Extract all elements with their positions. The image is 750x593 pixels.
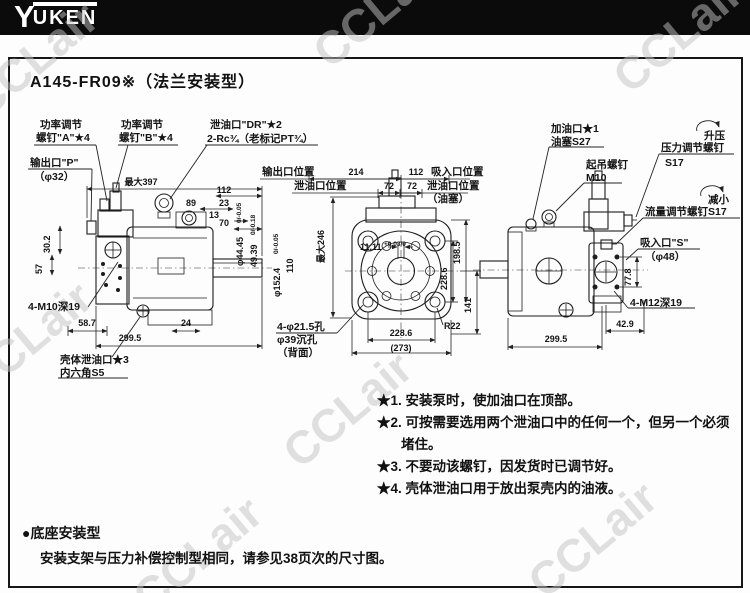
case-drain-label: 壳体泄油口★3 — [59, 353, 129, 366]
dim-112-front: 112 — [409, 167, 424, 177]
dim-30-2: 30.2 — [42, 235, 52, 253]
watermark-text: CCLair — [123, 486, 272, 593]
dim-299-5-right: 299.5 — [545, 334, 568, 344]
dim-42-9: 42.9 — [616, 319, 634, 329]
flow-decrease-label: 减小 — [708, 193, 729, 206]
note-line-3: ★3. 不要动该螺钉，因发货时已调节好。 — [377, 456, 737, 478]
outlet-position-label: 输出口位置 — [262, 165, 315, 178]
dim-228-6-horizontal: 228.6 — [390, 328, 413, 338]
dim-72-right: 72 — [407, 181, 417, 191]
dim-89: 89 — [186, 198, 196, 208]
dim-141: 141 — [463, 298, 473, 313]
drain-port-label: 泄油口"DR"★2 — [210, 118, 282, 131]
backside-label: （背面） — [277, 346, 319, 359]
base-mount-heading: ●底座安装型 — [22, 523, 100, 543]
notes-block: ★1. 安装泵时，使加油口在顶部。 ★2. 可按需要选用两个泄油口中的任何一个，… — [377, 390, 737, 500]
dimension-drawing: CCLair CCLair CCLair CCLair CCLair CCLai… — [0, 0, 750, 593]
suction-position-label: 吸入口位置 — [431, 165, 484, 178]
base-mount-text: 安装支架与压力补偿控制型相同，请参见38页次的尺寸图。 — [40, 547, 393, 567]
dim-57: 57 — [34, 264, 44, 274]
dim-70: 70 — [219, 218, 229, 228]
dim-110: 110 — [285, 258, 295, 273]
dim-keyway-tol: +0.03/0 — [384, 241, 406, 248]
dim-299-5: 299.5 — [119, 333, 142, 343]
dim-198-5: 198.5 — [452, 241, 462, 264]
note-line-4: ★4. 壳体泄油口用于放出泵壳内的油液。 — [377, 478, 737, 500]
drain-port-thread: 2-Rc¾（老标记PT¾） — [207, 132, 313, 145]
drain-position-right-label: 泄油口位置 — [427, 179, 480, 192]
fill-port-label: 加油口★1 — [550, 122, 599, 135]
dim-58-7: 58.7 — [78, 318, 96, 328]
pressure-screw-label: 压力调节螺钉 — [661, 141, 724, 154]
dim-72-left: 72 — [384, 181, 394, 191]
dim-23: 23 — [219, 198, 229, 208]
dim-13: 13 — [209, 210, 219, 220]
fill-plug-label: 油塞S27 — [551, 135, 591, 148]
power-screw-b-label: 功率调节 — [121, 118, 163, 131]
suction-port-size: （φ48） — [645, 250, 685, 263]
dim-overall-length: 最大397 — [124, 176, 157, 187]
dim-keyway: 11.11 — [360, 242, 382, 252]
flow-screw-label: 流量调节螺钉S17 — [645, 205, 727, 218]
case-drain-hex: 内六角S5 — [60, 366, 105, 379]
lift-screw-label: 起吊螺钉 — [585, 158, 628, 171]
suction-port-label: 吸入口"S" — [640, 237, 688, 249]
catalog-page: Y UKEN A145-FR09※（法兰安装型） CCLair CCLair C… — [0, 0, 750, 593]
power-screw-b-label: 螺钉"B"★4 — [119, 131, 173, 144]
watermark-text: CCLair — [303, 0, 452, 78]
dim-key-height: 49.39 — [249, 244, 259, 267]
drain-position-plug-label: （油塞） — [427, 192, 469, 205]
outlet-port-size: （φ32） — [34, 170, 74, 183]
dim-214: 214 — [348, 167, 363, 177]
dim-r22: R22 — [444, 321, 461, 331]
drain-position-left-label: 泄油口位置 — [294, 179, 347, 192]
mount-holes-21-5-label: 4-φ21.5孔 — [277, 320, 325, 333]
pressure-increase-label: 升压 — [704, 129, 725, 142]
dim-77-8: 77.8 — [623, 268, 633, 286]
note-line-2-cont: 堵住。 — [377, 434, 737, 456]
outlet-port-label: 输出口"P" — [30, 156, 78, 169]
note-line-2: ★2. 可按需要选用两个泄油口中的任何一个，但另一个必须 — [377, 412, 737, 434]
dim-112: 112 — [217, 185, 232, 195]
dim-shaft-dia: φ44.45 — [235, 237, 245, 266]
dim-228-6-vertical: 228.6 — [439, 267, 449, 290]
dim-key-height-tol: 0/-0.18 — [250, 214, 257, 235]
watermark-text: CCLair — [0, 0, 108, 128]
power-screw-a-label: 螺钉"A"★4 — [36, 131, 90, 144]
dim-pilot-dia: φ152.4 — [272, 268, 282, 297]
dim-273: (273) — [390, 343, 411, 353]
lift-screw-size: M10 — [586, 172, 607, 184]
dim-max-246: 最大246 — [315, 230, 326, 263]
pressure-screw-size: S17 — [665, 157, 684, 169]
watermark-text: CCLair — [603, 0, 750, 103]
counterbore-label: φ39沉孔 — [277, 333, 318, 346]
dim-pilot-dia-tol: 0/-0.05 — [273, 233, 280, 254]
dim-24: 24 — [181, 318, 191, 328]
mount-holes-m12-label: 4-M12深19 — [630, 296, 682, 309]
left-pump-view: 功率调节 螺钉"A"★4 功率调节 螺钉"B"★4 输出口"P" （φ32） 泄… — [28, 118, 318, 379]
note-line-1: ★1. 安装泵时，使加油口在顶部。 — [377, 390, 737, 412]
mount-holes-m10-label: 4-M10深19 — [28, 300, 80, 313]
right-pump-view: 加油口★1 油塞S27 起吊螺钉 M10 升压 压力调节螺钉 S17 减小 流量… — [473, 121, 740, 350]
dim-shaft-dia-tol: 0/-0.05 — [236, 202, 243, 223]
watermark-text: CCLair — [0, 271, 102, 408]
power-screw-a-label: 功率调节 — [40, 118, 82, 131]
